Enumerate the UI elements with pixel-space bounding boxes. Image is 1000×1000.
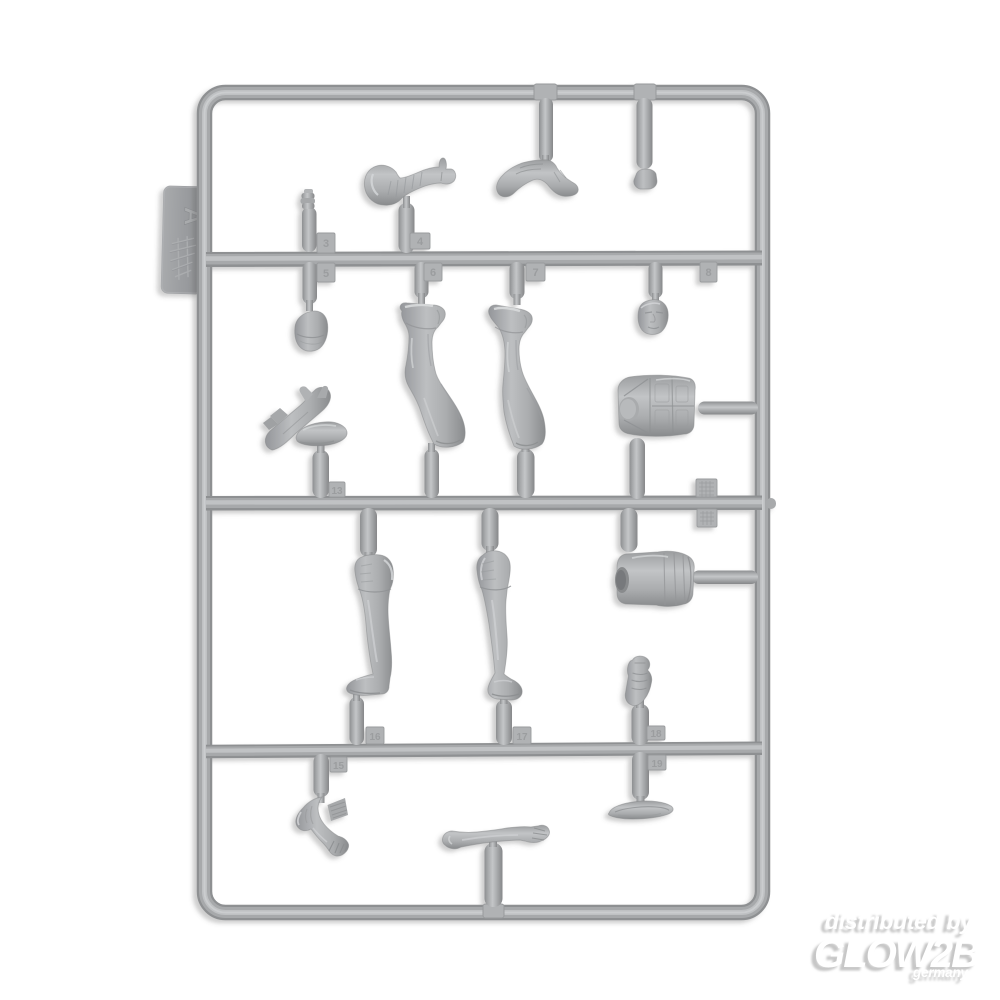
svg-text:distributed by: distributed by: [825, 908, 974, 934]
svg-text:8: 8: [705, 267, 711, 279]
svg-text:17: 17: [516, 732, 528, 743]
svg-text:13: 13: [331, 486, 343, 497]
svg-text:18: 18: [650, 729, 662, 740]
svg-text:15: 15: [333, 761, 345, 772]
svg-text:5: 5: [323, 268, 329, 280]
svg-text:7: 7: [532, 267, 538, 279]
svg-text:6: 6: [430, 267, 436, 279]
svg-text:16: 16: [369, 732, 381, 743]
svg-text:4: 4: [417, 236, 424, 248]
svg-text:germany: germany: [912, 965, 969, 980]
svg-text:19: 19: [651, 759, 663, 770]
svg-text:3: 3: [323, 238, 329, 250]
